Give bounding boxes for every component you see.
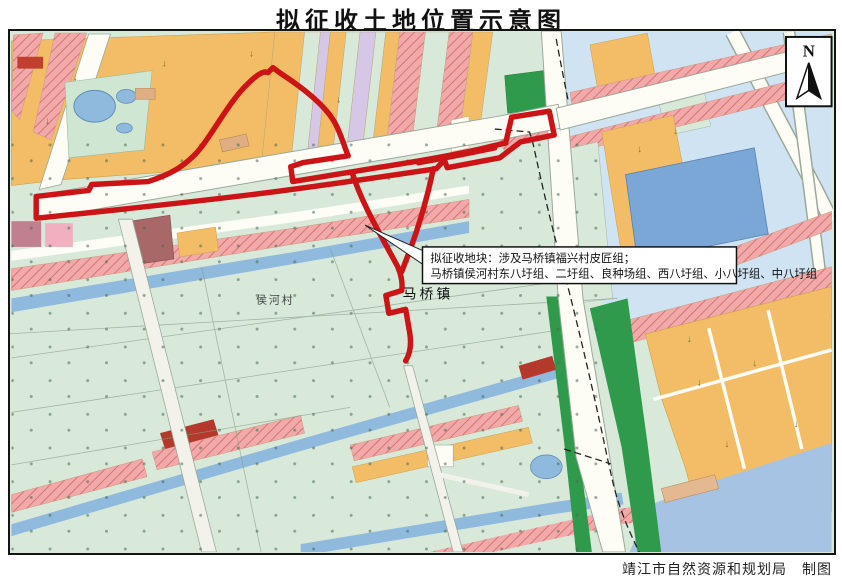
town-label: 马桥镇: [403, 286, 454, 301]
svg-text:↓: ↓: [637, 144, 642, 155]
svg-text:↓: ↓: [752, 358, 757, 369]
annotation-line1: 拟征收地块：涉及马桥镇福兴村皮匠组；: [430, 251, 635, 265]
svg-text:↓: ↓: [673, 126, 678, 137]
svg-text:↓: ↓: [794, 419, 799, 430]
svg-text:↓: ↓: [697, 378, 702, 389]
field-dots: [11, 130, 605, 552]
north-label: N: [803, 42, 815, 61]
svg-text:↓: ↓: [249, 49, 254, 60]
map-canvas: ↓↓↓ ↓↓ ↓↓ ↓↓↓ ↓↓ 拟征收地块：涉及马桥镇福兴村皮匠组； 马桥镇侯…: [10, 31, 833, 552]
north-arrow: N: [786, 37, 832, 106]
svg-text:↓: ↓: [73, 73, 78, 84]
village-label: 侯河村: [256, 292, 295, 306]
annotation-line2: 马桥镇侯河村东八圩组、二圩组、良种场组、西八圩组、小八圩组、中八圩组: [430, 267, 817, 281]
map-frame: ↓↓↓ ↓↓ ↓↓ ↓↓↓ ↓↓ 拟征收地块：涉及马桥镇福兴村皮匠组； 马桥镇侯…: [8, 29, 836, 555]
svg-text:↓: ↓: [162, 59, 167, 70]
land-acquisition-map-page: 拟征收土地位置示意图: [0, 0, 842, 582]
map-credit: 靖江市自然资源和规划局 制图: [560, 559, 832, 579]
svg-text:↓: ↓: [687, 334, 692, 345]
svg-text:↓: ↓: [336, 94, 341, 105]
svg-text:↓: ↓: [725, 439, 730, 450]
svg-text:↓: ↓: [45, 116, 50, 127]
